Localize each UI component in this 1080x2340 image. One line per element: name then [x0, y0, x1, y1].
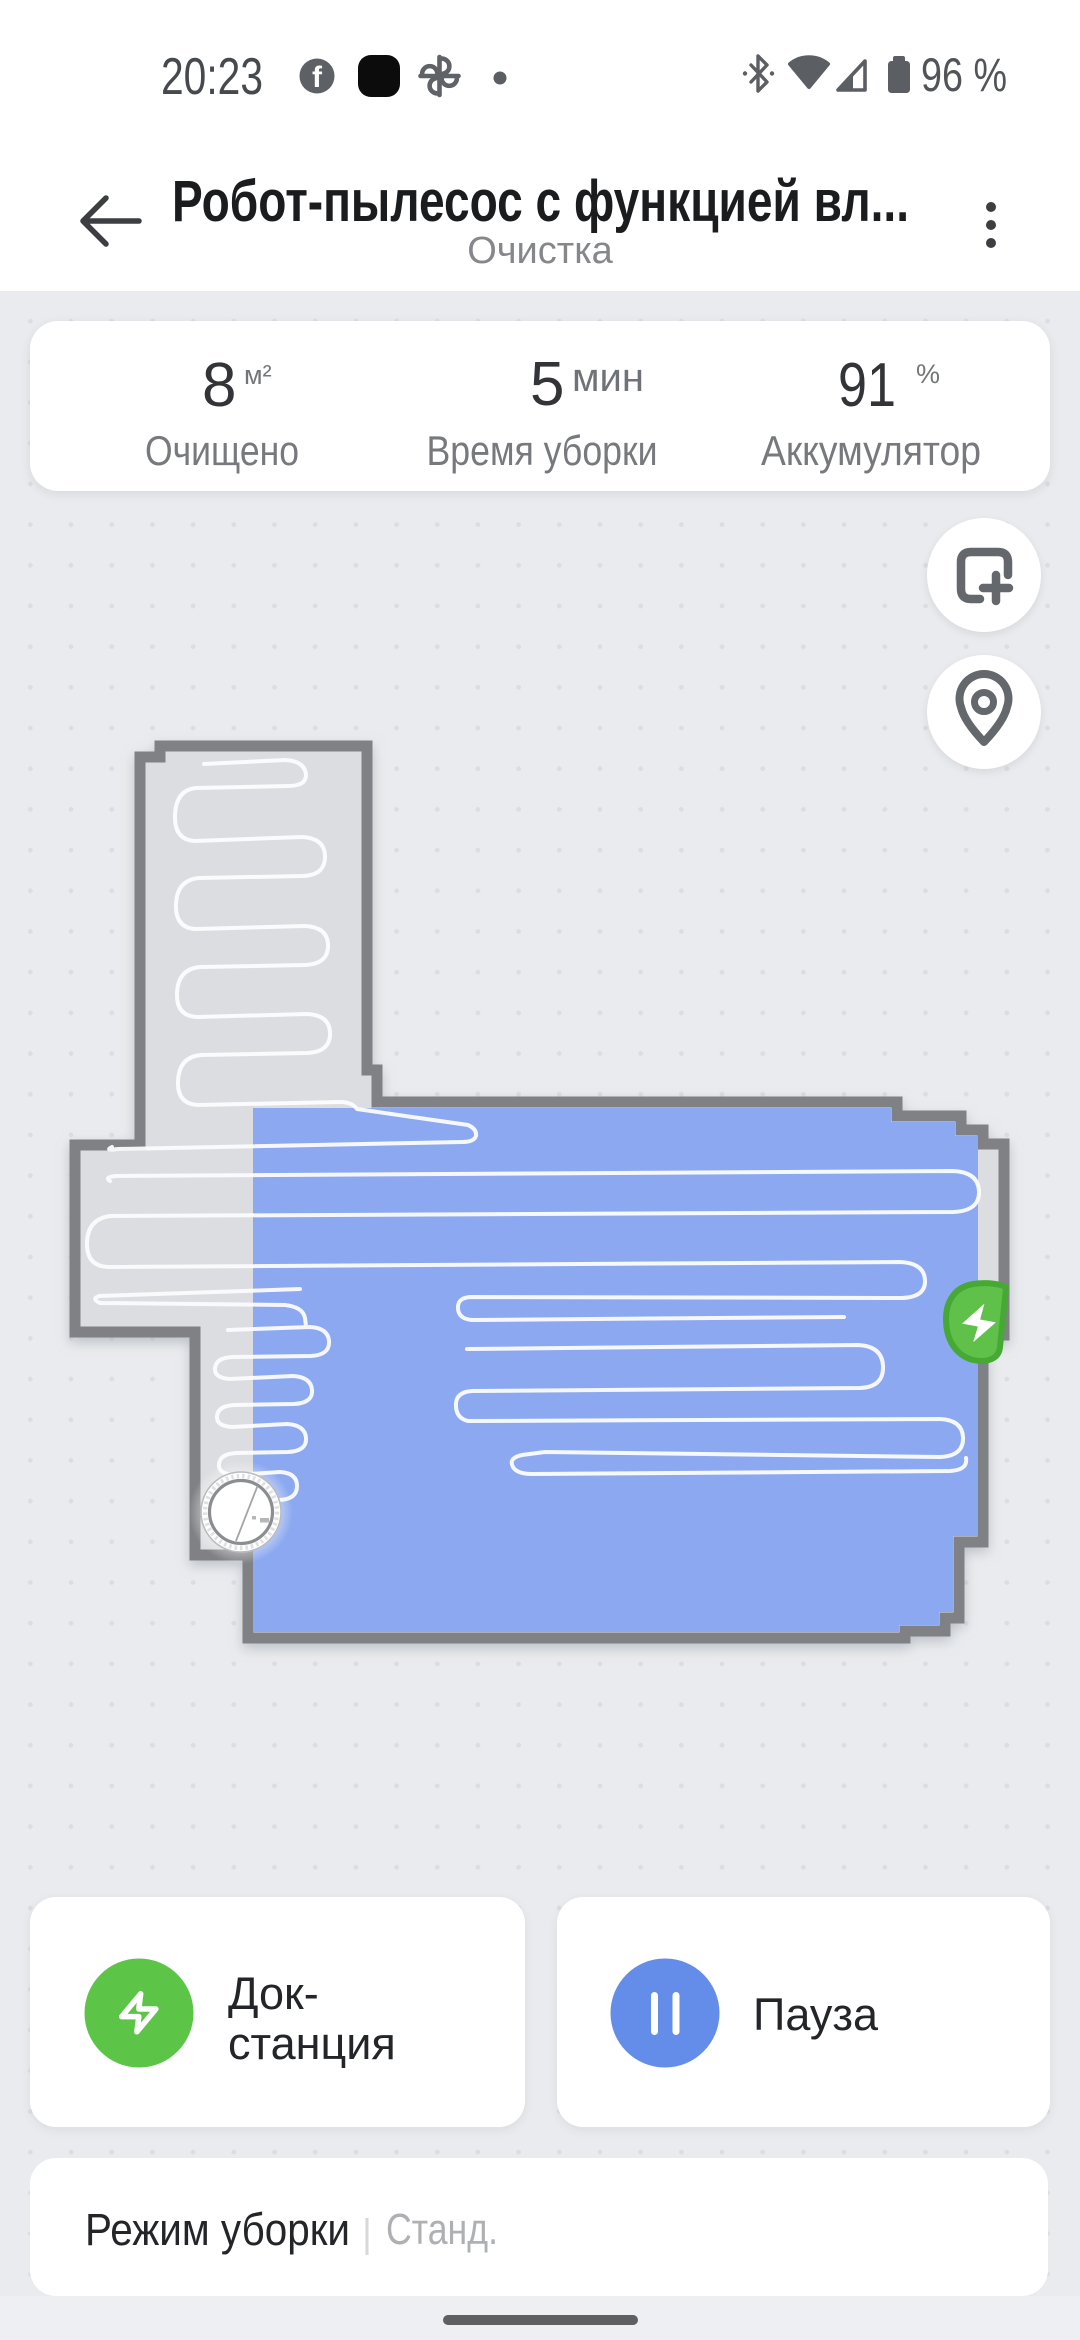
svg-text:Режим уборки: Режим уборки: [85, 2204, 350, 2255]
svg-text:Пауза: Пауза: [753, 1989, 879, 2040]
svg-text:Док-: Док-: [228, 1968, 319, 2019]
svg-text:станция: станция: [228, 2018, 396, 2069]
svg-text:Станд.: Станд.: [386, 2205, 498, 2254]
